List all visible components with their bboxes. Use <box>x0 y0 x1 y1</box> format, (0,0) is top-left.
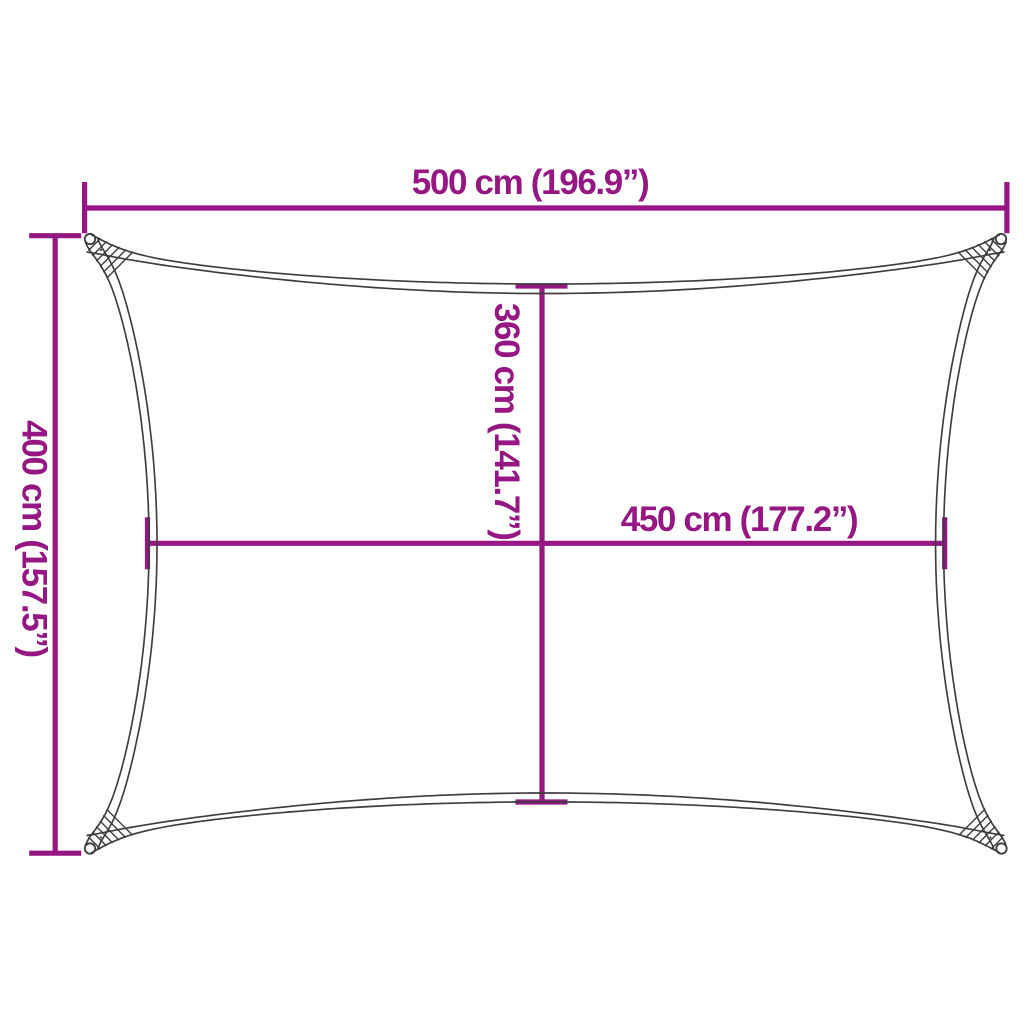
svg-text:450 cm (177.2”): 450 cm (177.2”) <box>621 500 858 539</box>
svg-text:360 cm (141.7”): 360 cm (141.7”) <box>487 303 526 540</box>
svg-text:500 cm (196.9”): 500 cm (196.9”) <box>412 163 649 202</box>
svg-text:400 cm (157.5”): 400 cm (157.5”) <box>14 420 53 657</box>
